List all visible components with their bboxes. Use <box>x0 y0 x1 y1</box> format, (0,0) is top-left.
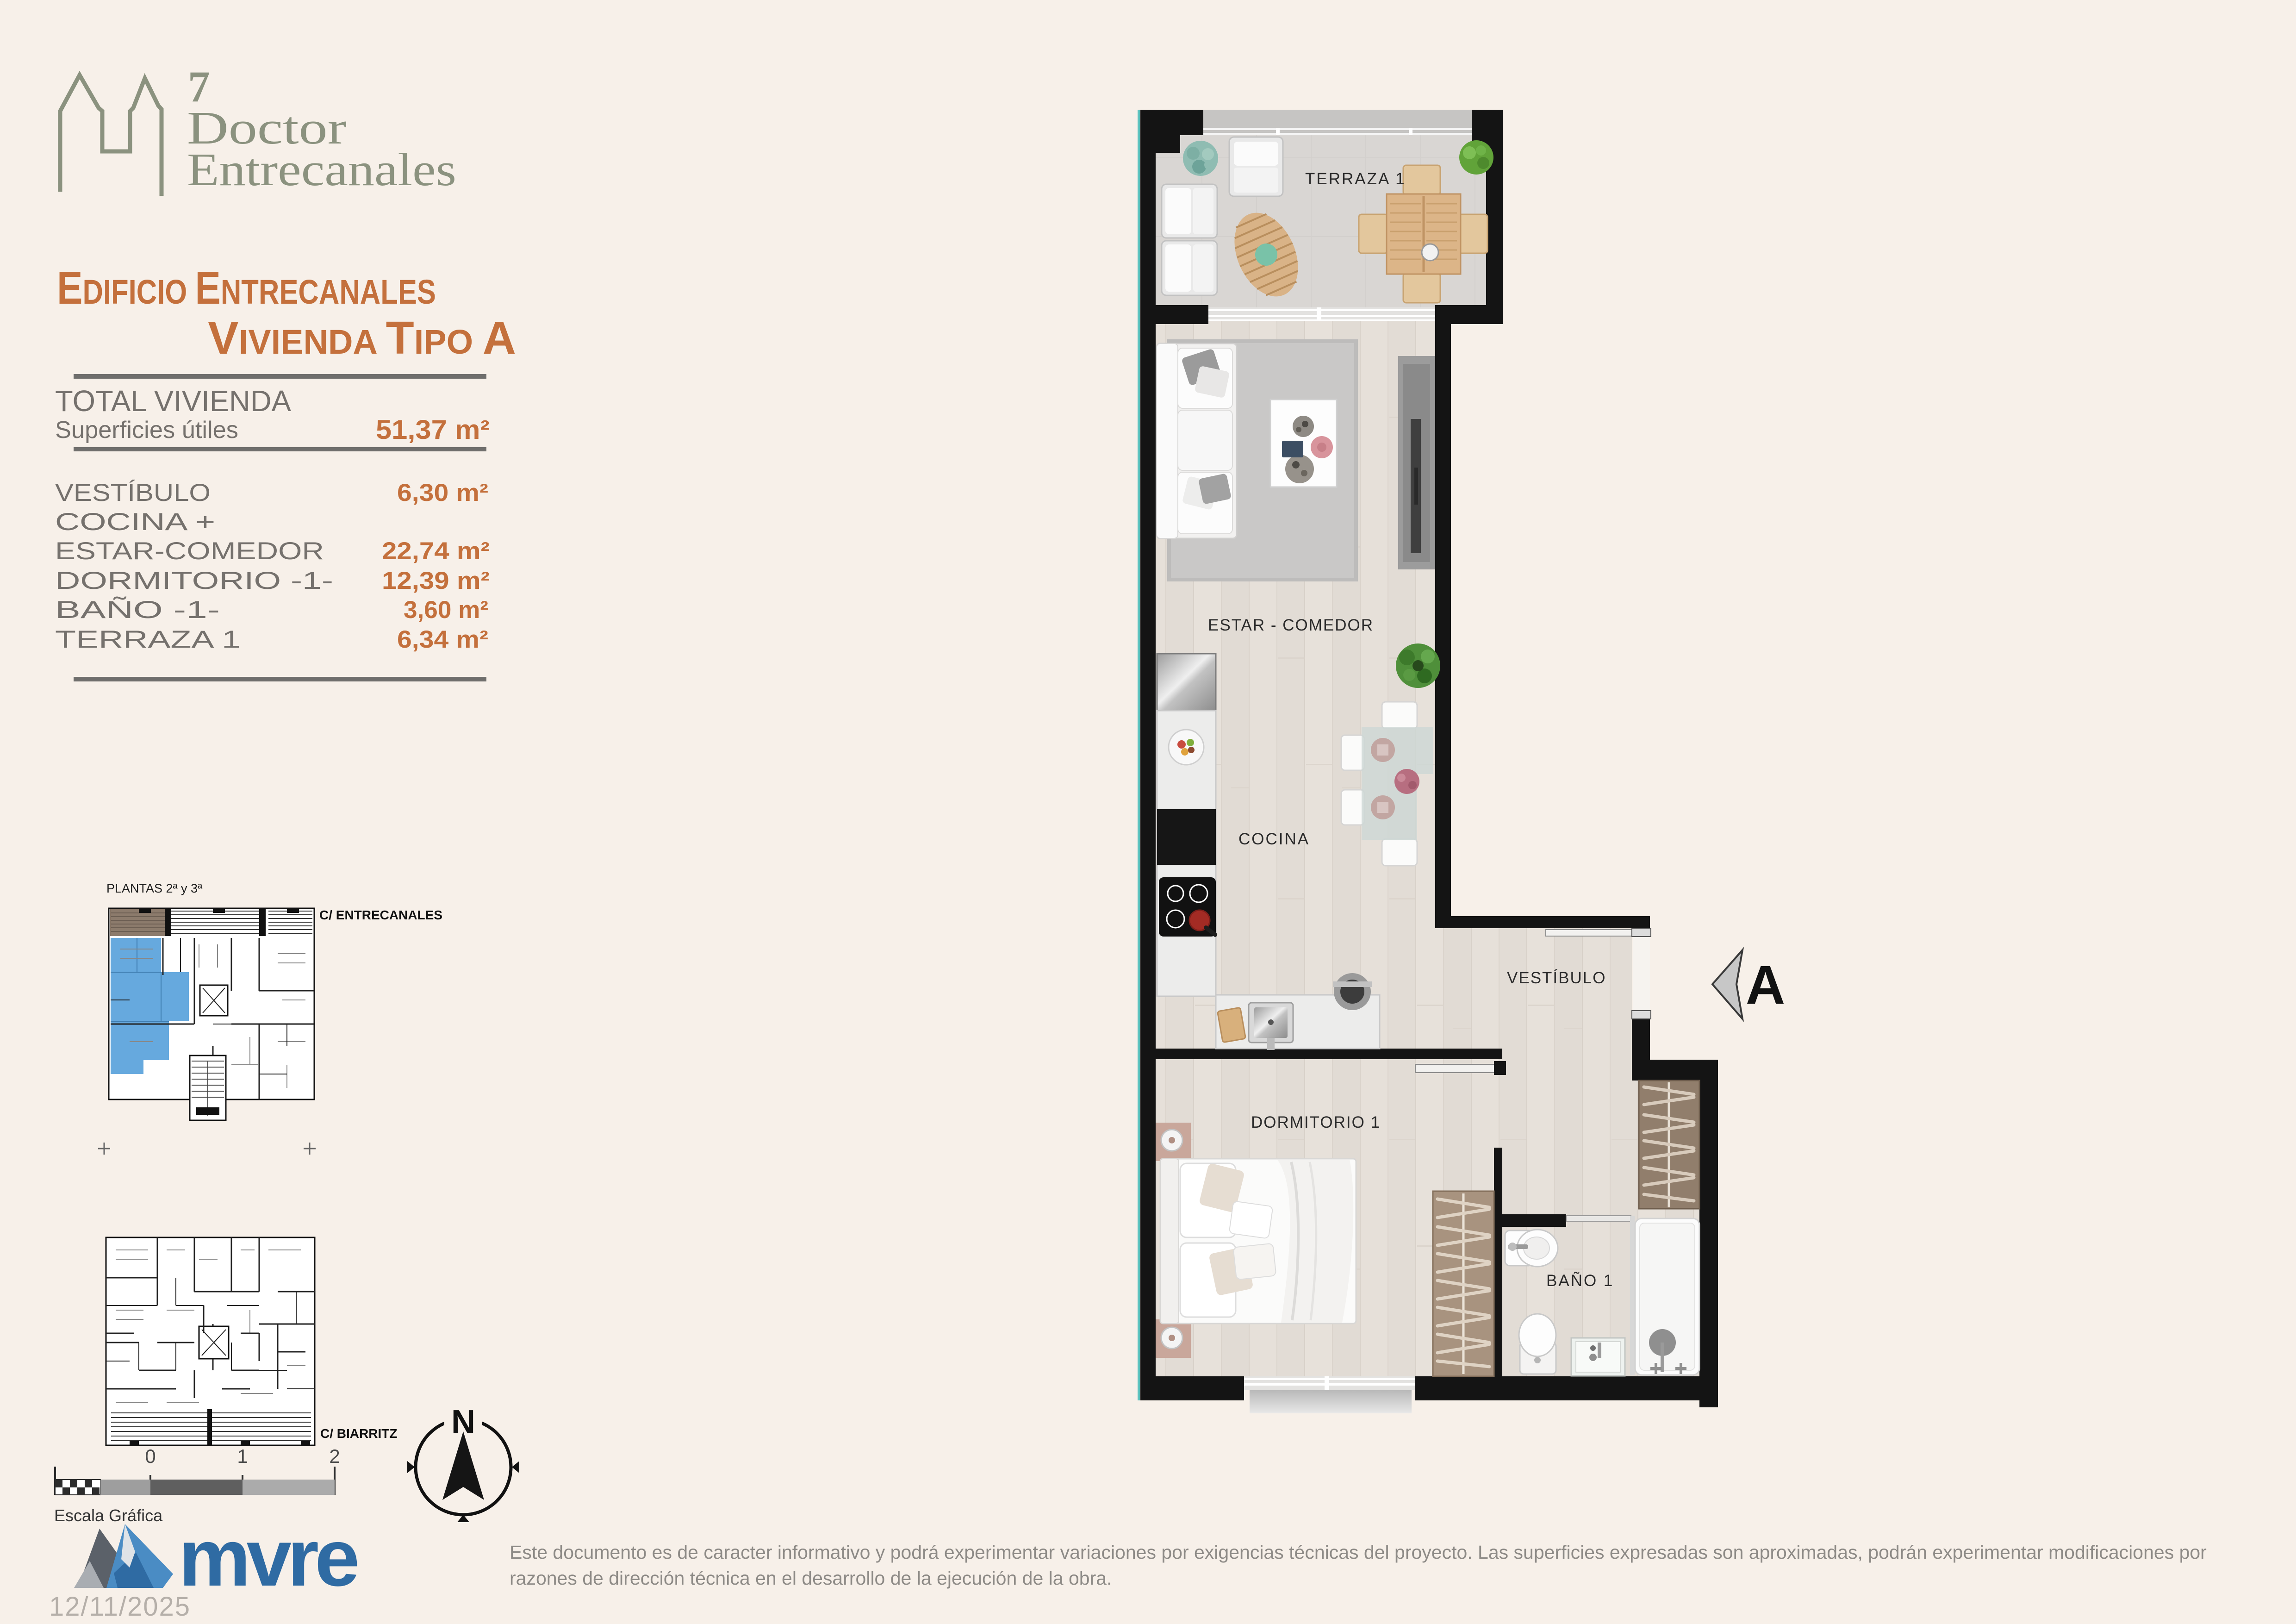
svg-text:ESTAR - COMEDOR: ESTAR - COMEDOR <box>1208 616 1374 634</box>
svg-text:COCINA: COCINA <box>1238 830 1310 848</box>
svg-text:1: 1 <box>237 1445 248 1467</box>
svg-text:Entrecanales: Entrecanales <box>187 144 456 195</box>
svg-text:DORMITORIO 1: DORMITORIO 1 <box>1251 1113 1381 1131</box>
svg-text:DORMITORIO -1-: DORMITORIO -1- <box>55 567 333 594</box>
svg-text:VESTÍBULO: VESTÍBULO <box>1507 969 1606 987</box>
svg-text:TERRAZA 1: TERRAZA 1 <box>1305 170 1406 188</box>
svg-text:51,37 m²: 51,37 m² <box>376 415 490 445</box>
svg-text:Escala Gráfica: Escala Gráfica <box>54 1506 163 1525</box>
svg-text:3,60 m²: 3,60 m² <box>404 596 488 624</box>
svg-text:2: 2 <box>329 1445 340 1467</box>
svg-text:6,34 m²: 6,34 m² <box>397 626 488 653</box>
svg-text:mvre: mvre <box>179 1513 357 1603</box>
svg-text:COCINA +: COCINA + <box>55 508 215 536</box>
svg-text:BAÑO 1: BAÑO 1 <box>1546 1272 1614 1290</box>
svg-text:TERRAZA 1: TERRAZA 1 <box>55 626 241 653</box>
svg-text:razones de dirección técnica e: razones de dirección técnica en el desar… <box>510 1568 1112 1589</box>
svg-text:6,30 m²: 6,30 m² <box>397 479 488 506</box>
svg-text:Superficies útiles: Superficies útiles <box>55 417 238 443</box>
svg-text:12/11/2025: 12/11/2025 <box>49 1592 191 1622</box>
svg-text:Este documento es de caracter: Este documento es de caracter informativ… <box>510 1542 2207 1563</box>
svg-text:0: 0 <box>145 1445 156 1467</box>
svg-text:C/ BIARRITZ: C/ BIARRITZ <box>320 1426 397 1441</box>
svg-text:TOTAL VIVIENDA: TOTAL VIVIENDA <box>55 384 291 418</box>
svg-text:A: A <box>1746 955 1785 1016</box>
svg-text:VESTÍBULO: VESTÍBULO <box>55 479 211 506</box>
svg-text:BAÑO -1-: BAÑO -1- <box>55 596 220 624</box>
svg-text:C/ ENTRECANALES: C/ ENTRECANALES <box>319 908 442 922</box>
svg-text:ESTAR-COMEDOR: ESTAR-COMEDOR <box>55 537 324 565</box>
svg-text:22,74 m²: 22,74 m² <box>382 537 490 565</box>
svg-text:PLANTAS 2ª y 3ª: PLANTAS 2ª y 3ª <box>106 881 203 895</box>
svg-text:12,39 m²: 12,39 m² <box>382 567 490 594</box>
